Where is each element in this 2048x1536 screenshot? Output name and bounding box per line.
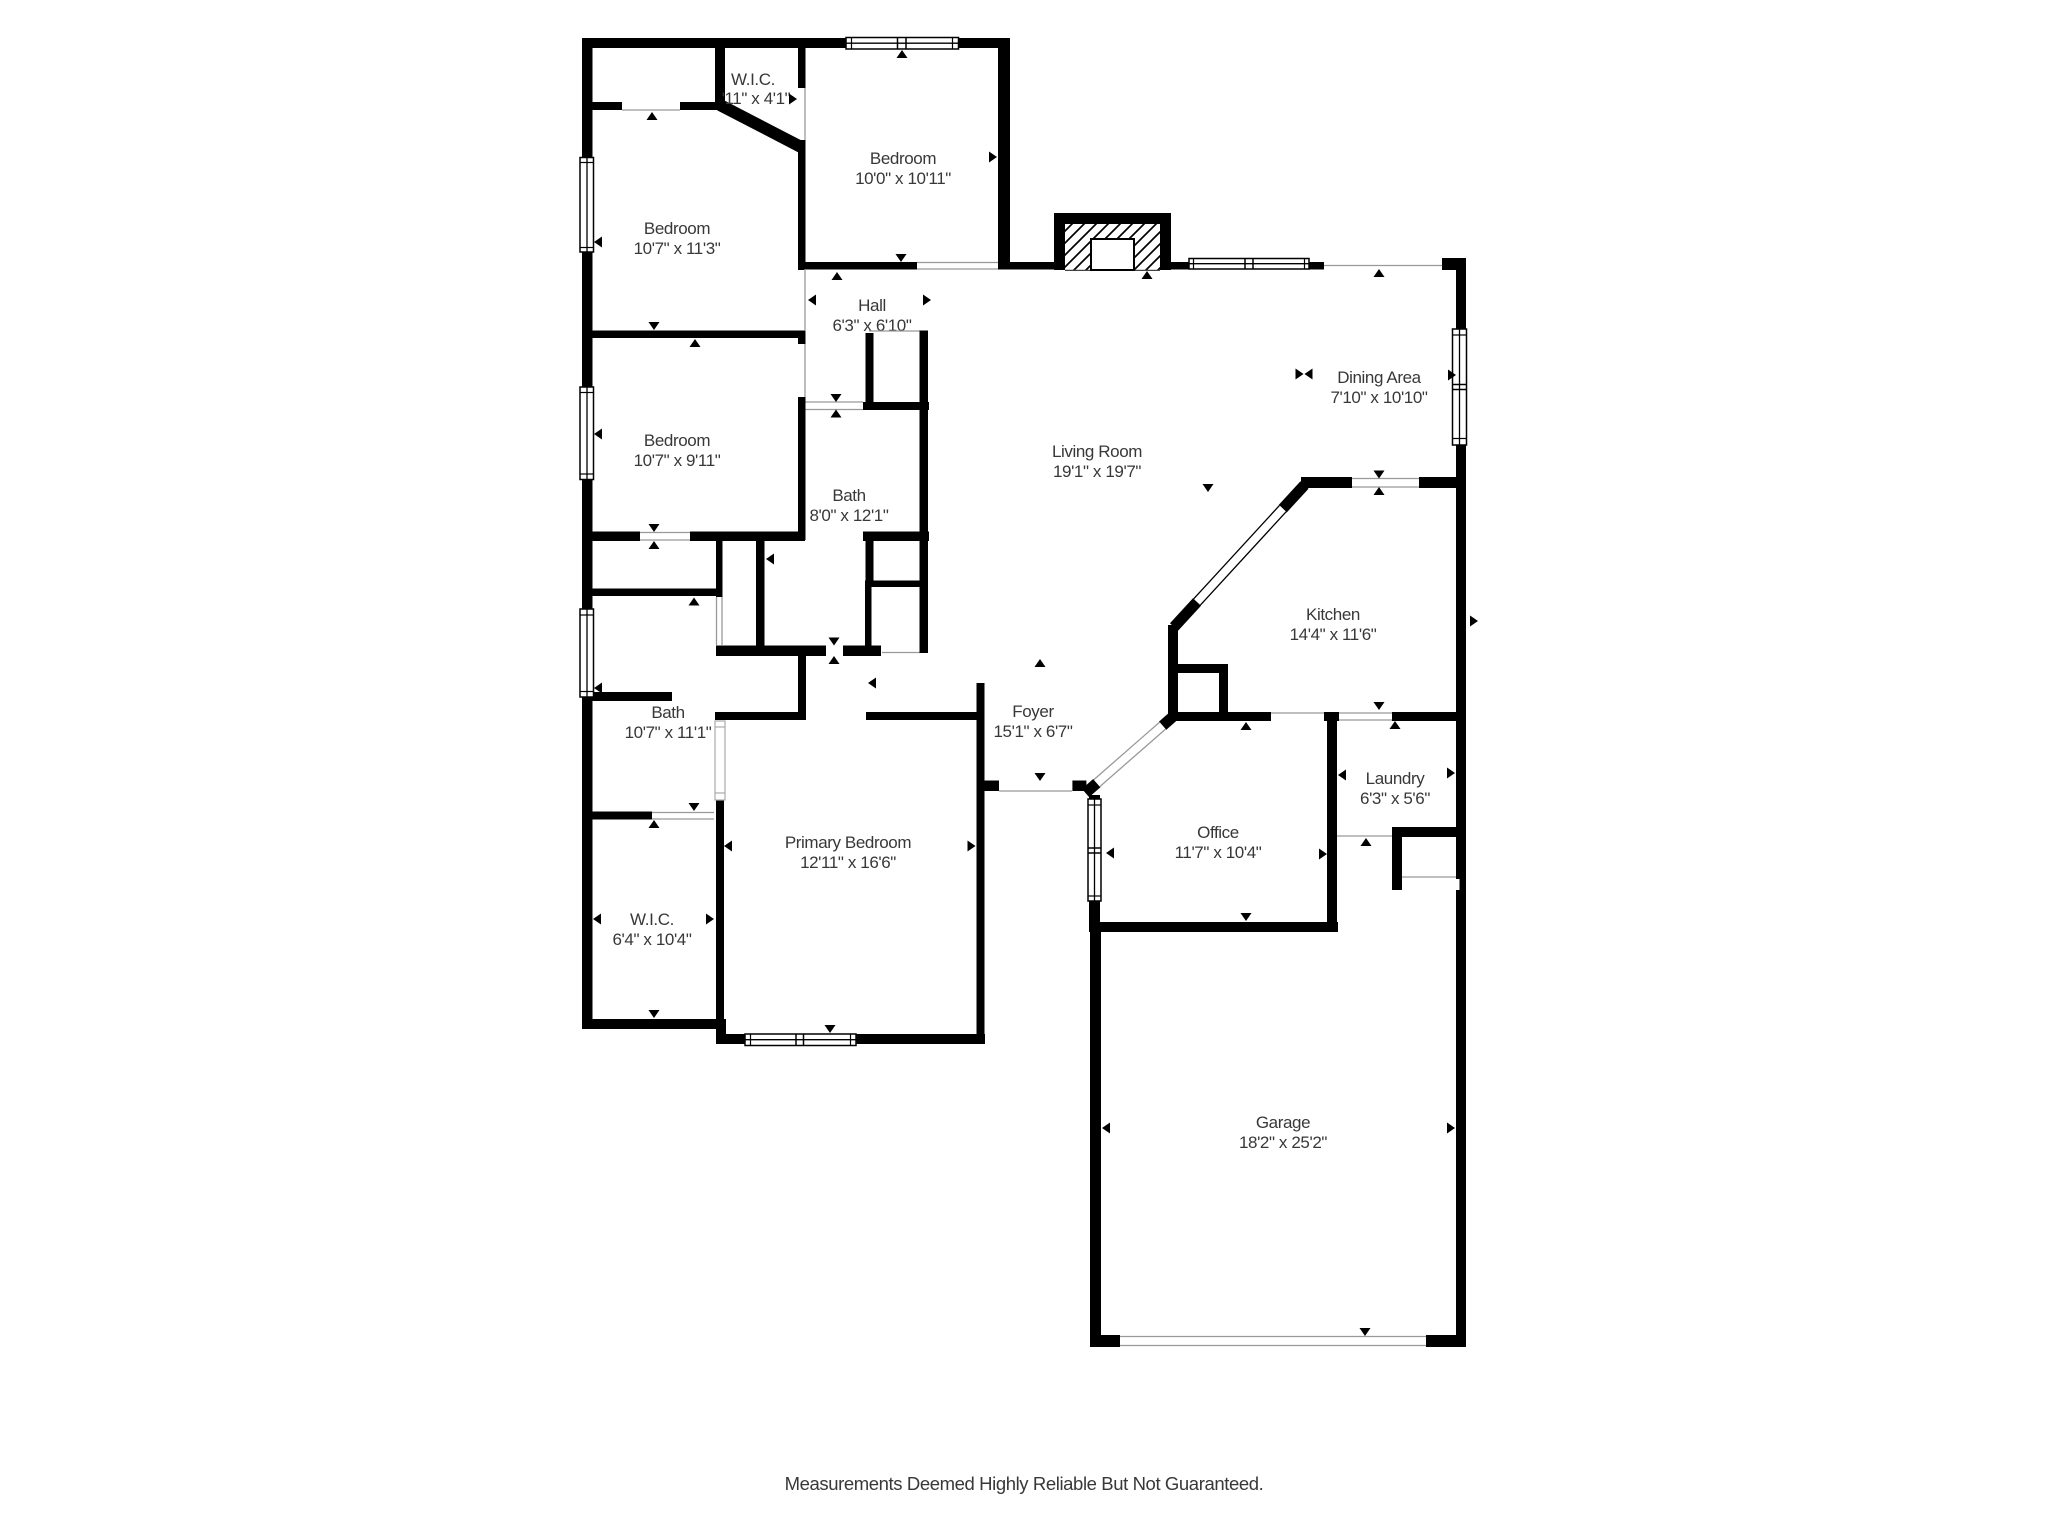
svg-text:18'2" x 25'2": 18'2" x 25'2" xyxy=(1239,1133,1327,1152)
svg-text:10'7" x 11'1": 10'7" x 11'1" xyxy=(625,723,712,742)
svg-text:W.I.C.: W.I.C. xyxy=(731,70,775,89)
svg-text:11'7" x 10'4": 11'7" x 10'4" xyxy=(1175,843,1262,862)
svg-text:14'4" x 11'6": 14'4" x 11'6" xyxy=(1290,625,1377,644)
svg-text:7'10" x 10'10": 7'10" x 10'10" xyxy=(1330,388,1427,407)
svg-text:10'0" x 10'11": 10'0" x 10'11" xyxy=(855,169,951,188)
svg-text:8'0" x 12'1": 8'0" x 12'1" xyxy=(810,506,889,525)
svg-text:Living Room: Living Room xyxy=(1052,442,1142,461)
svg-text:10'7" x 9'11": 10'7" x 9'11" xyxy=(634,451,721,470)
svg-text:Bath: Bath xyxy=(651,703,684,722)
svg-text:Kitchen: Kitchen xyxy=(1306,605,1360,624)
svg-text:Office: Office xyxy=(1197,823,1239,842)
svg-text:15'1" x 6'7": 15'1" x 6'7" xyxy=(994,722,1073,741)
svg-text:Laundry: Laundry xyxy=(1366,769,1426,788)
svg-text:10'7" x 11'3": 10'7" x 11'3" xyxy=(634,239,721,258)
svg-text:Hall: Hall xyxy=(858,296,886,315)
svg-text:19'1" x 19'7": 19'1" x 19'7" xyxy=(1053,462,1141,481)
svg-text:Measurements Deemed Highly Rel: Measurements Deemed Highly Reliable But … xyxy=(785,1473,1264,1494)
svg-text:Bedroom: Bedroom xyxy=(644,431,710,450)
svg-text:12'11" x 16'6": 12'11" x 16'6" xyxy=(800,853,896,872)
svg-text:Primary Bedroom: Primary Bedroom xyxy=(785,833,911,852)
svg-text:W.I.C.: W.I.C. xyxy=(630,910,674,929)
svg-text:Bath: Bath xyxy=(832,486,865,505)
svg-text:Dining Area: Dining Area xyxy=(1337,368,1421,387)
svg-text:'11" x 4'1": '11" x 4'1" xyxy=(722,89,791,108)
svg-text:Bedroom: Bedroom xyxy=(870,149,936,168)
svg-text:6'4" x 10'4": 6'4" x 10'4" xyxy=(613,930,692,949)
svg-text:6'3" x 6'10": 6'3" x 6'10" xyxy=(833,316,912,335)
svg-text:6'3" x 5'6": 6'3" x 5'6" xyxy=(1360,789,1430,808)
svg-text:Bedroom: Bedroom xyxy=(644,219,710,238)
svg-text:Foyer: Foyer xyxy=(1012,702,1054,721)
svg-text:Garage: Garage xyxy=(1256,1113,1310,1132)
